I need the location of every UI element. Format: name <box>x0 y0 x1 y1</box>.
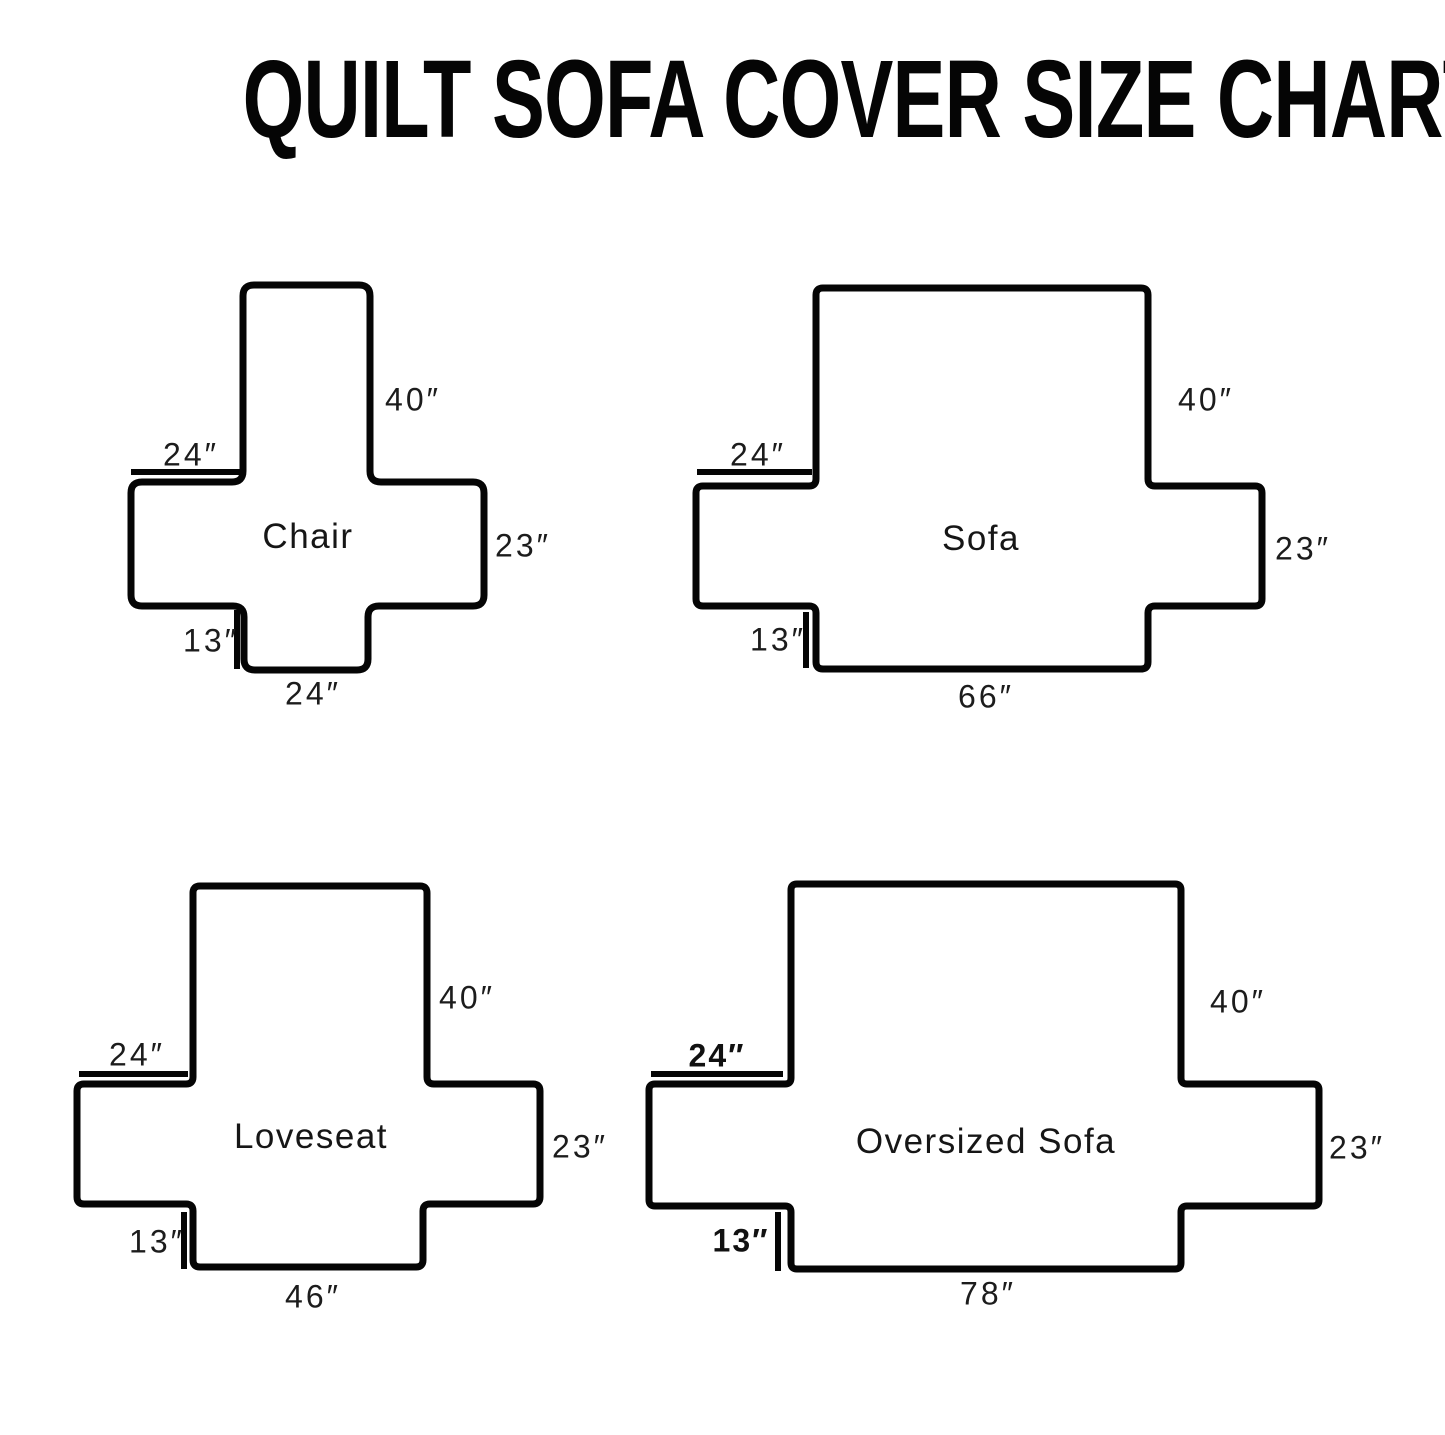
chair-skirt-drop-label: 13″ <box>183 623 239 660</box>
loveseat-bottom-width-label: 46″ <box>285 1279 341 1316</box>
oversized-sofa-skirt-drop-label: 13″ <box>713 1223 770 1260</box>
chair-arm-width-label: 24″ <box>163 437 219 474</box>
sofa-skirt-drop-label: 13″ <box>750 622 806 659</box>
loveseat-skirt-drop-label: 13″ <box>129 1224 185 1261</box>
quilt-sofa-cover-size-chart: QUILT SOFA COVER SIZE CHART 40″ 24″ Chai… <box>0 0 1445 1435</box>
sofa-back-height-label: 40″ <box>1178 382 1234 419</box>
loveseat-arm-width-label: 24″ <box>109 1037 165 1074</box>
loveseat-arm-height-label: 23″ <box>552 1129 608 1166</box>
oversized-sofa-name-label: Oversized Sofa <box>856 1122 1116 1162</box>
oversized-sofa-back-height-label: 40″ <box>1210 984 1266 1021</box>
diagram-shapes-layer <box>0 0 1445 1435</box>
sofa-name-label: Sofa <box>942 519 1020 559</box>
chair-bottom-width-label: 24″ <box>285 676 341 713</box>
sofa-arm-width-label: 24″ <box>730 437 786 474</box>
oversized-sofa-arm-width-label: 24″ <box>689 1038 746 1075</box>
sofa-arm-height-label: 23″ <box>1275 531 1331 568</box>
chair-outline <box>131 285 484 670</box>
loveseat-name-label: Loveseat <box>234 1117 388 1157</box>
chair-back-height-label: 40″ <box>385 382 441 419</box>
sofa-bottom-width-label: 66″ <box>958 679 1014 716</box>
oversized-sofa-bottom-width-label: 78″ <box>960 1276 1016 1313</box>
chair-name-label: Chair <box>262 517 353 557</box>
oversized-sofa-arm-height-label: 23″ <box>1329 1130 1385 1167</box>
sofa-outline <box>696 288 1262 669</box>
loveseat-back-height-label: 40″ <box>439 980 495 1017</box>
chair-arm-height-label: 23″ <box>495 528 551 565</box>
